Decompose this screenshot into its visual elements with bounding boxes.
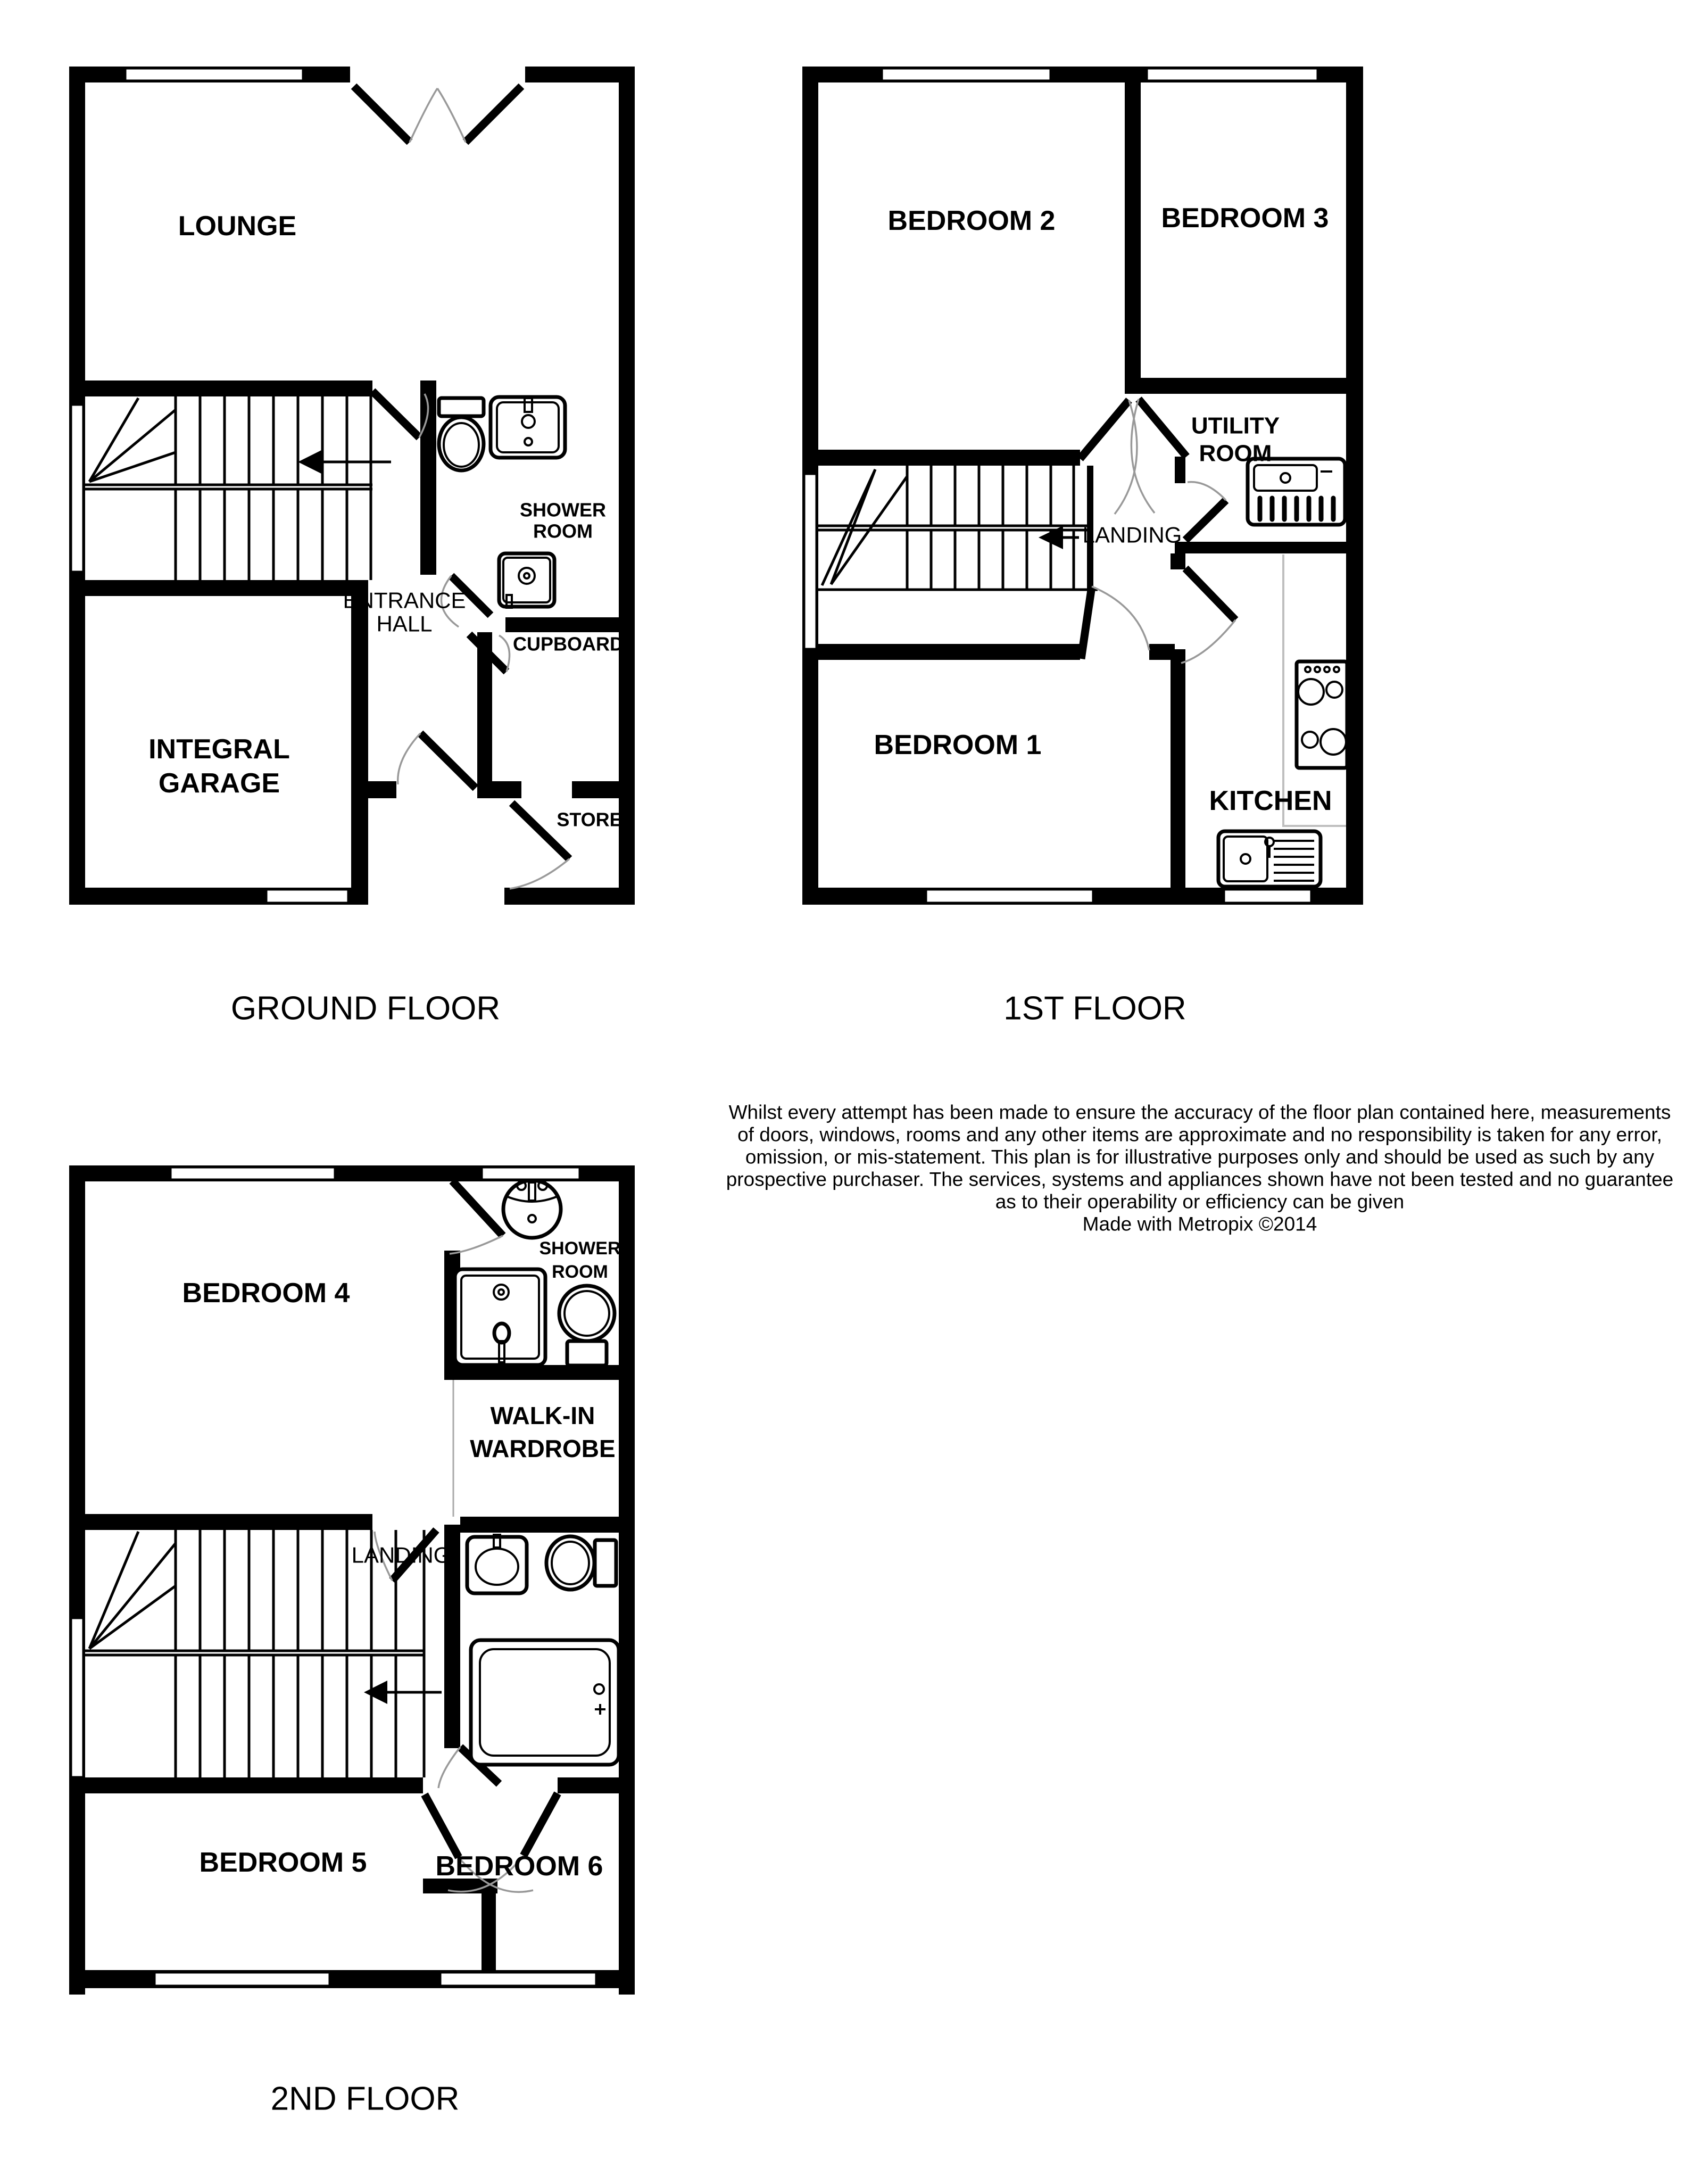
kitchen-sink-icon xyxy=(1218,831,1321,887)
utility-door-leaf xyxy=(1185,500,1226,540)
disclaimer-line-5: as to their operability or efficiency ca… xyxy=(995,1191,1405,1213)
hob-icon xyxy=(1297,661,1347,768)
bath-icon xyxy=(471,1640,619,1765)
bedroom3-label: BEDROOM 3 xyxy=(1161,203,1329,234)
front-door-leaf xyxy=(420,733,476,788)
bedroom1-label: BEDROOM 1 xyxy=(874,730,1042,760)
kitchen-window xyxy=(1224,889,1312,903)
ground-floor-labels: LOUNGE ENTRANCE HALL SHOWER ROOM CUPBOAR… xyxy=(148,211,624,831)
first-floor-plan: BEDROOM 2 BEDROOM 3 UTILITY ROOM LANDING… xyxy=(802,67,1363,1027)
integral-garage-label-line2: GARAGE xyxy=(159,768,280,799)
sink-icon xyxy=(491,397,565,458)
walk-in-wardrobe-label-line1: WALK-IN xyxy=(491,1402,595,1429)
bathroom-basin-icon xyxy=(467,1535,527,1593)
store-label: STORE xyxy=(557,809,622,831)
bedroom4-label: BEDROOM 4 xyxy=(182,1278,350,1309)
landing-label: LANDING xyxy=(1083,523,1182,548)
bedroom2-door-leaf xyxy=(1080,400,1129,459)
stairs-direction-arrow xyxy=(298,450,391,474)
shower-room-door-leaf xyxy=(452,1181,503,1236)
ground-floor-plan: LOUNGE ENTRANCE HALL SHOWER ROOM CUPBOAR… xyxy=(69,67,635,1027)
kitchen-door-leaf xyxy=(1185,568,1235,620)
landing-side-window xyxy=(804,474,817,649)
cupboard-label: CUPBOARD xyxy=(513,633,624,655)
french-door-left-leaf xyxy=(354,86,410,142)
ground-floor-stairs xyxy=(85,396,391,580)
landing-side-window xyxy=(71,1618,84,1777)
ground-floor-caption: GROUND FLOOR xyxy=(231,990,500,1027)
shower-room-label-line2: ROOM xyxy=(533,520,593,542)
kitchen-label: KITCHEN xyxy=(1209,785,1332,816)
disclaimer-line-4: prospective purchaser. The services, sys… xyxy=(726,1169,1674,1190)
bedroom3-door-leaf xyxy=(1139,399,1186,457)
basin-icon xyxy=(503,1180,561,1238)
stairs-direction-arrow xyxy=(364,1681,442,1704)
disclaimer-text: Whilst every attempt has been made to en… xyxy=(726,1102,1674,1235)
lounge-label: LOUNGE xyxy=(178,211,296,242)
bedroom6-label: BEDROOM 6 xyxy=(436,1851,603,1882)
floorplan-drawing: LOUNGE ENTRANCE HALL SHOWER ROOM CUPBOAR… xyxy=(0,0,1685,2184)
lounge-door-leaf xyxy=(372,391,419,437)
lounge-window xyxy=(125,68,303,81)
ground-floor-doors xyxy=(354,86,569,889)
first-floor-windows xyxy=(804,68,1318,903)
bedroom5-window xyxy=(154,1972,330,1986)
first-floor-caption: 1ST FLOOR xyxy=(1003,990,1186,1027)
first-floor-stairs xyxy=(818,466,1098,590)
disclaimer-line-1: Whilst every attempt has been made to en… xyxy=(729,1102,1671,1123)
shower-room-label-line1: SHOWER xyxy=(539,1238,621,1259)
integral-garage-label-line1: INTEGRAL xyxy=(148,734,290,765)
shower-tray-icon xyxy=(455,1269,545,1365)
garage-window xyxy=(266,889,348,903)
walk-in-wardrobe-label-line2: WARDROBE xyxy=(470,1435,615,1462)
floorplan-page: LOUNGE ENTRANCE HALL SHOWER ROOM CUPBOAR… xyxy=(0,0,1685,2184)
entrance-hall-label-line2: HALL xyxy=(376,611,432,636)
utility-room-label-line2: ROOM xyxy=(1199,441,1272,467)
french-door-right-leaf xyxy=(466,86,521,142)
second-floor-plan: BEDROOM 4 SHOWER ROOM WALK-IN WARDROBE L… xyxy=(69,1165,635,2117)
made-with-metropix-label: Made with Metropix ©2014 xyxy=(1083,1213,1317,1235)
bedroom6-door-leaf xyxy=(524,1793,558,1856)
entrance-hall-label-line1: ENTRANCE xyxy=(343,588,466,613)
bedroom1-door-leaf xyxy=(1081,586,1092,659)
shower-room-window xyxy=(482,1167,580,1180)
second-floor-caption: 2ND FLOOR xyxy=(271,2081,460,2117)
toilet-icon xyxy=(439,398,484,470)
bedroom4-window xyxy=(170,1167,335,1180)
utility-sink-icon xyxy=(1248,459,1345,525)
bedroom6-window xyxy=(440,1972,596,1986)
bedroom2-label: BEDROOM 2 xyxy=(888,205,1056,236)
disclaimer-line-2: of doors, windows, rooms and any other i… xyxy=(737,1124,1662,1146)
landing-label: LANDING xyxy=(352,1543,451,1568)
bedroom1-window xyxy=(926,889,1093,903)
bathroom-toilet-icon xyxy=(546,1536,616,1590)
shower-tray-icon xyxy=(499,553,554,608)
bedroom5-label: BEDROOM 5 xyxy=(200,1847,367,1878)
shower-room-label-line1: SHOWER xyxy=(520,499,606,521)
bedroom2-window xyxy=(882,68,1051,81)
disclaimer-line-3: omission, or mis-statement. This plan is… xyxy=(745,1146,1655,1168)
toilet-icon xyxy=(559,1286,615,1366)
bedroom3-window xyxy=(1147,68,1318,81)
utility-room-label-line1: UTILITY xyxy=(1191,413,1280,439)
stairs-side-window xyxy=(71,404,84,572)
bedroom5-door-leaf xyxy=(425,1794,459,1857)
shower-room-label-line2: ROOM xyxy=(552,1262,608,1282)
